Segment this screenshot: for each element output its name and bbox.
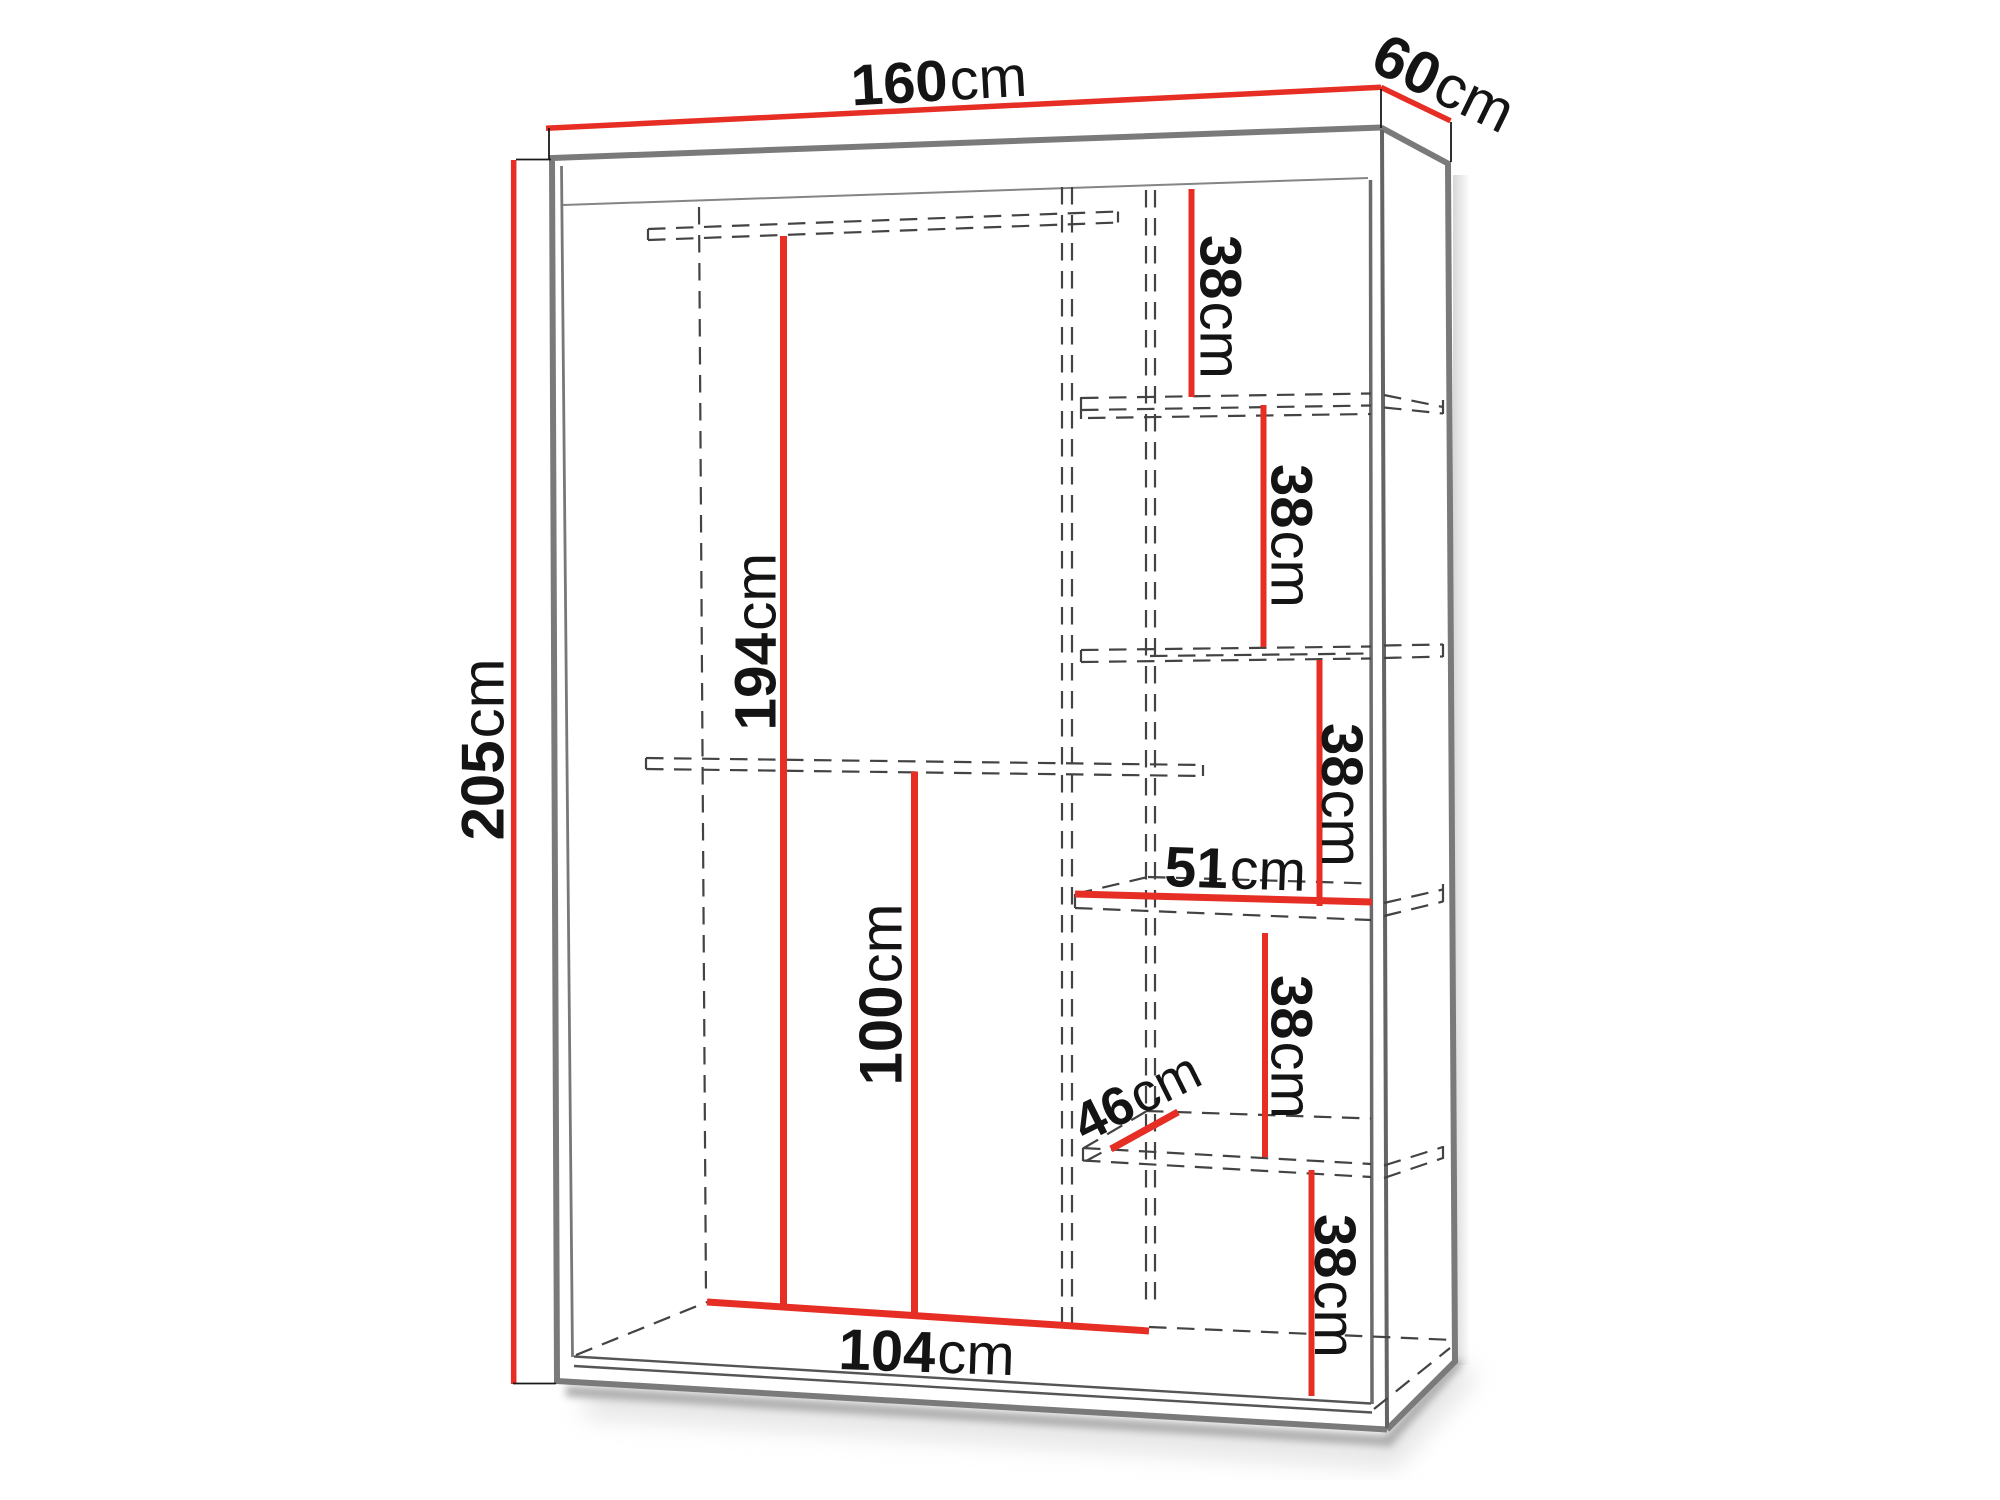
svg-text:100cm: 100cm <box>848 903 915 1085</box>
svg-text:51cm: 51cm <box>1164 835 1308 904</box>
svg-text:38cm: 38cm <box>1188 235 1253 379</box>
svg-text:104cm: 104cm <box>838 1317 1016 1388</box>
svg-text:38cm: 38cm <box>1302 1214 1367 1358</box>
svg-text:38cm: 38cm <box>1309 723 1374 867</box>
svg-text:160cm: 160cm <box>849 44 1028 119</box>
svg-text:205cm: 205cm <box>450 658 517 840</box>
svg-text:194cm: 194cm <box>724 553 789 731</box>
svg-text:38cm: 38cm <box>1259 975 1324 1119</box>
svg-text:38cm: 38cm <box>1259 464 1324 608</box>
